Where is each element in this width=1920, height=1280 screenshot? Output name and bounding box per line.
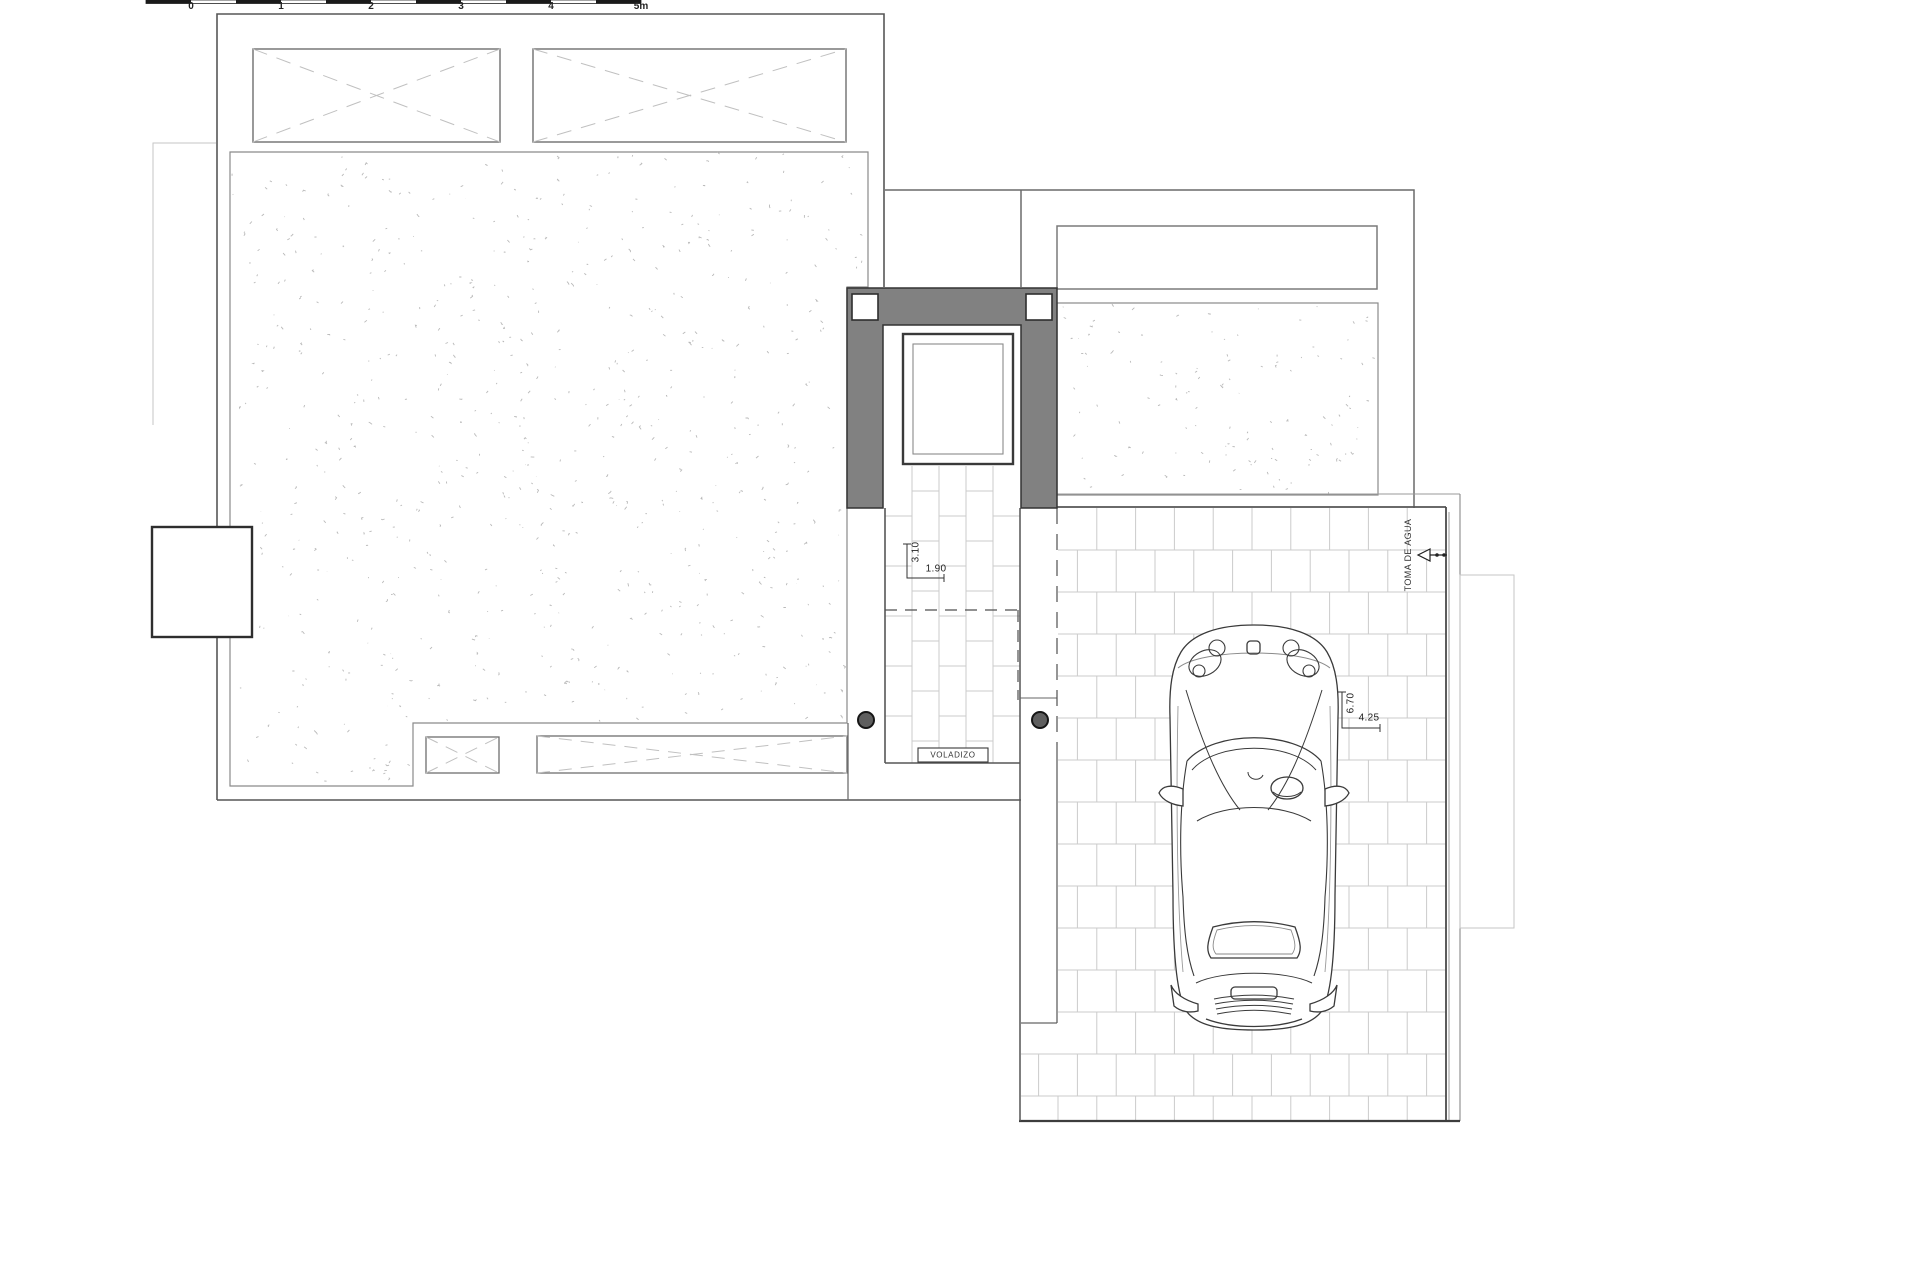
- wall-opening-right: [1026, 294, 1052, 320]
- dimension-6-70: 6.70: [1346, 693, 1357, 714]
- scale-label-0: 0: [188, 1, 194, 12]
- wall-opening-left: [852, 294, 878, 320]
- water-intake-icon: [1418, 549, 1447, 561]
- toma-de-agua-label: TOMA DE AGUA: [1403, 519, 1413, 592]
- dimension-1-90: 1.90: [926, 564, 947, 575]
- car-body: [1170, 625, 1338, 1030]
- side-planter-outline: [1460, 575, 1514, 928]
- scale-label-2: 2: [368, 1, 374, 12]
- scale-label-5m: 5m: [634, 1, 648, 12]
- floor-plan-sheet: 0 1 2 3 4 5m 3.10 1.90 6.70 4.25 VOLADIZ…: [0, 0, 1920, 1280]
- skylight-strip-top: [253, 49, 846, 142]
- elevator-shaft: [903, 334, 1013, 464]
- scale-label-4: 4: [548, 1, 554, 12]
- dimension-3-10: 3.10: [911, 542, 922, 563]
- floor-plan-canvas: [0, 0, 1920, 1280]
- walkway-tiles: [885, 466, 1020, 763]
- dimension-4-25: 4.25: [1359, 713, 1380, 724]
- walkway-edges: [885, 508, 1020, 763]
- car-top-view: [1159, 625, 1349, 1030]
- pillar-dot-right: [1032, 712, 1048, 728]
- mirror-left: [1159, 786, 1183, 806]
- plot-step-lines: [153, 143, 216, 425]
- roof-stipple-area: [230, 152, 868, 786]
- mirror-right: [1325, 786, 1349, 806]
- pillar-dot-left: [858, 712, 874, 728]
- scale-label-3: 3: [458, 1, 464, 12]
- scale-ruler: [146, 0, 641, 4]
- scale-label-1: 1: [278, 1, 284, 12]
- rooftop-unit-box: [152, 527, 252, 637]
- terrace-side-strip: [1021, 508, 1057, 1023]
- voladizo-label: VOLADIZO: [930, 751, 975, 760]
- garage-stipple-area: [1057, 303, 1378, 495]
